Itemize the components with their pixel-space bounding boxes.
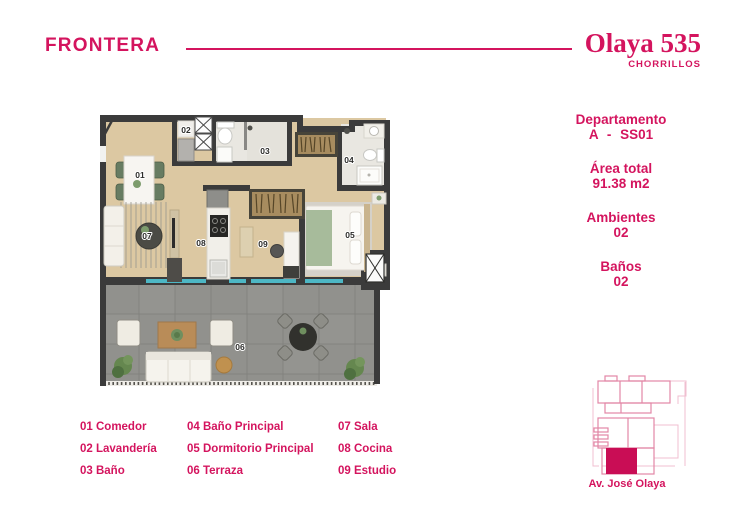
legend-item: 01 Comedor	[80, 416, 157, 438]
room-label-bano: 03	[260, 146, 270, 156]
area-label: Área total	[540, 161, 702, 176]
unit-baths-group: Baños 02	[540, 259, 702, 289]
lounge-chair	[210, 320, 233, 346]
department-label: Departamento	[540, 112, 702, 127]
legend-column-3: 07 Sala 08 Cocina 09 Estudio	[338, 416, 396, 482]
legend-column-1: 01 Comedor 02 Lavandería 03 Baño	[80, 416, 157, 482]
room-label-bano-principal: 04	[344, 155, 354, 165]
outdoor-dining-table	[289, 323, 317, 351]
unit-rooms-group: Ambientes 02	[540, 210, 702, 240]
ac-unit	[366, 254, 384, 282]
kitchen	[207, 190, 230, 279]
street-label: Av. José Olaya	[567, 478, 687, 490]
dining-table	[124, 156, 154, 204]
project-name: Olaya 535	[585, 28, 701, 59]
hall-closet	[295, 132, 338, 157]
legend-item: 08 Cocina	[338, 438, 396, 460]
shower-head	[248, 126, 253, 131]
siteplan-unit-highlight	[606, 448, 637, 474]
sink	[370, 127, 379, 136]
window	[100, 146, 106, 162]
room-label-terraza: 06	[235, 342, 245, 352]
department-value: A - SS01	[540, 127, 702, 142]
rooms-value: 02	[540, 225, 702, 240]
unit-info-panel: Departamento A - SS01 Área total 91.38 m…	[540, 112, 702, 308]
bench	[240, 227, 253, 257]
sink	[217, 147, 232, 162]
area-value: 91.38 m2	[540, 176, 702, 191]
toilet	[218, 128, 232, 144]
unit-area-group: Área total 91.38 m2	[540, 161, 702, 191]
desk-chair	[271, 245, 284, 258]
legend-item: 03 Baño	[80, 460, 157, 482]
terrace-railing	[103, 381, 377, 386]
lounge-chair	[117, 320, 140, 346]
room-label-sala: 07	[142, 231, 152, 241]
study-closet	[249, 189, 305, 219]
project-location: CHORRILLOS	[628, 59, 701, 70]
shower-head	[344, 128, 350, 134]
legend-item: 06 Terraza	[187, 460, 314, 482]
legend-item: 05 Dormitorio Principal	[187, 438, 314, 460]
cabinet	[167, 258, 182, 282]
unit-department-group: Departamento A - SS01	[540, 112, 702, 142]
brochure-page: FRONTERA Olaya 535 CHORRILLOS Departamen…	[0, 0, 730, 515]
room-label-cocina: 08	[196, 238, 206, 248]
stove	[210, 215, 228, 237]
baths-label: Baños	[540, 259, 702, 274]
room-label-comedor: 01	[135, 170, 145, 180]
baths-value: 02	[540, 274, 702, 289]
legend-item: 02 Lavandería	[80, 438, 157, 460]
rooms-label: Ambientes	[540, 210, 702, 225]
sofa	[104, 206, 124, 266]
fridge	[207, 190, 228, 208]
legend-item: 07 Sala	[338, 416, 396, 438]
washer-dryer	[195, 117, 212, 150]
legend-item: 04 Baño Principal	[187, 416, 314, 438]
room-label-lavanderia: 02	[181, 125, 191, 135]
legend-item: 09 Estudio	[338, 460, 396, 482]
frontera-logo: FRONTERA	[45, 35, 160, 57]
side-table	[216, 357, 232, 373]
shelf	[283, 266, 299, 278]
site-key-plan	[585, 370, 705, 478]
room-label-dormitorio: 05	[345, 230, 355, 240]
toilet	[364, 150, 377, 161]
legend-column-2: 04 Baño Principal 05 Dormitorio Principa…	[187, 416, 314, 482]
room-label-estudio: 09	[258, 239, 268, 249]
floor-plan-image: 01 02 03 04 05 06 07 08 09	[100, 115, 390, 390]
header-divider-line	[186, 48, 572, 50]
tv	[172, 218, 175, 248]
